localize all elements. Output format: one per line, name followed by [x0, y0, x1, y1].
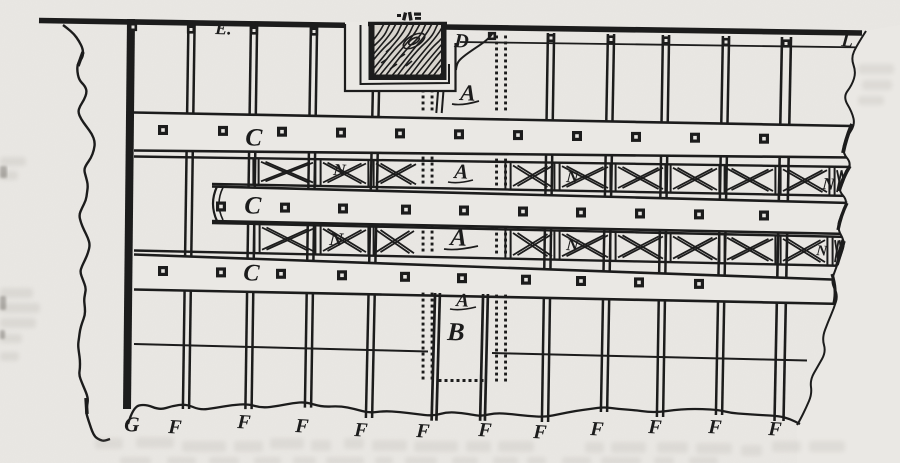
svg-text:N: N — [332, 160, 347, 180]
svg-text:F: F — [294, 415, 310, 438]
svg-text:N: N — [565, 235, 580, 255]
svg-text:F: F — [532, 421, 548, 444]
svg-text:F: F — [767, 418, 783, 441]
svg-text:B: B — [446, 317, 465, 347]
svg-text:N: N — [565, 167, 580, 187]
svg-text:F: F — [236, 411, 252, 434]
svg-text:F: F — [415, 420, 431, 443]
svg-text:F: F — [707, 416, 723, 439]
svg-text:N: N — [328, 229, 345, 251]
svg-text:C: C — [244, 192, 262, 220]
svg-text:N: N — [821, 174, 836, 194]
svg-text:F: F — [589, 418, 605, 441]
svg-text:D: D — [453, 30, 470, 53]
svg-text:F: F — [477, 419, 493, 442]
svg-text:N: N — [815, 243, 829, 260]
svg-text:C: C — [245, 124, 263, 152]
svg-text:C: C — [243, 260, 261, 287]
svg-text:F: F — [647, 416, 663, 439]
svg-text:A: A — [452, 159, 469, 184]
svg-text:L: L — [840, 30, 854, 52]
svg-text:G: G — [124, 412, 140, 437]
svg-text:F: F — [167, 416, 183, 439]
svg-text:E.: E. — [214, 18, 232, 39]
